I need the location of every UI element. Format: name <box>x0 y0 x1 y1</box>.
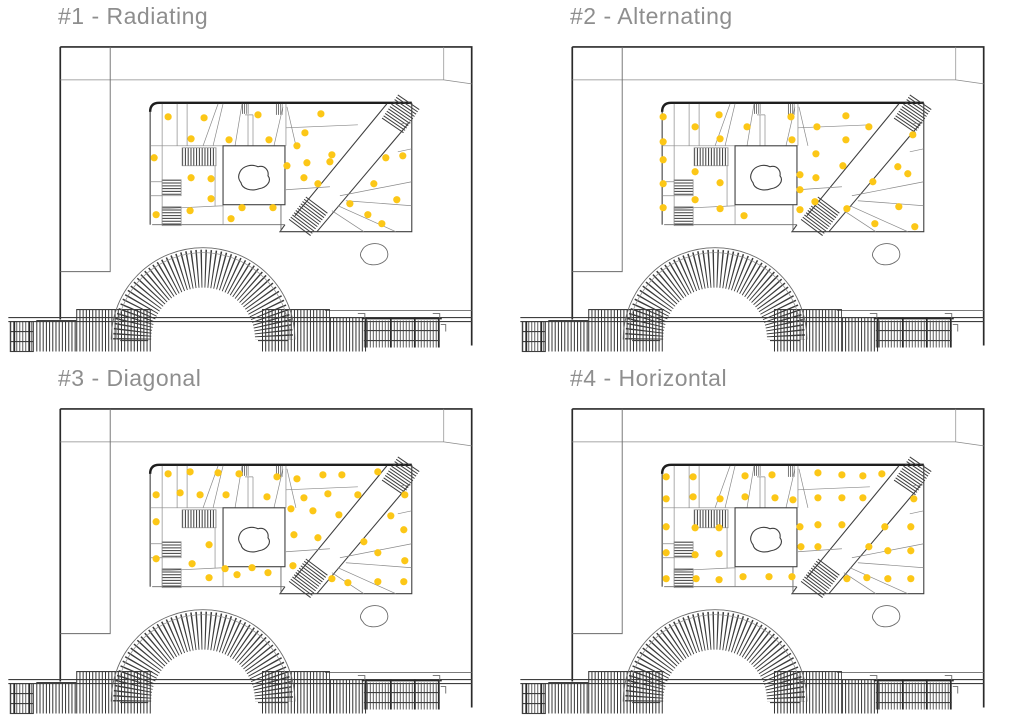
site-plan-drawing <box>512 0 1024 362</box>
site-plan-drawing <box>0 0 512 362</box>
site-plan-drawing <box>0 362 512 723</box>
site-plan-drawing <box>512 362 1024 723</box>
panel-option-3: #3 - Diagonal <box>0 362 512 723</box>
comparison-grid: #1 - Radiating #2 - Alternating #3 - Dia… <box>0 0 1024 723</box>
panel-option-4: #4 - Horizontal <box>512 362 1024 723</box>
panel-option-1: #1 - Radiating <box>0 0 512 362</box>
panel-option-2: #2 - Alternating <box>512 0 1024 362</box>
